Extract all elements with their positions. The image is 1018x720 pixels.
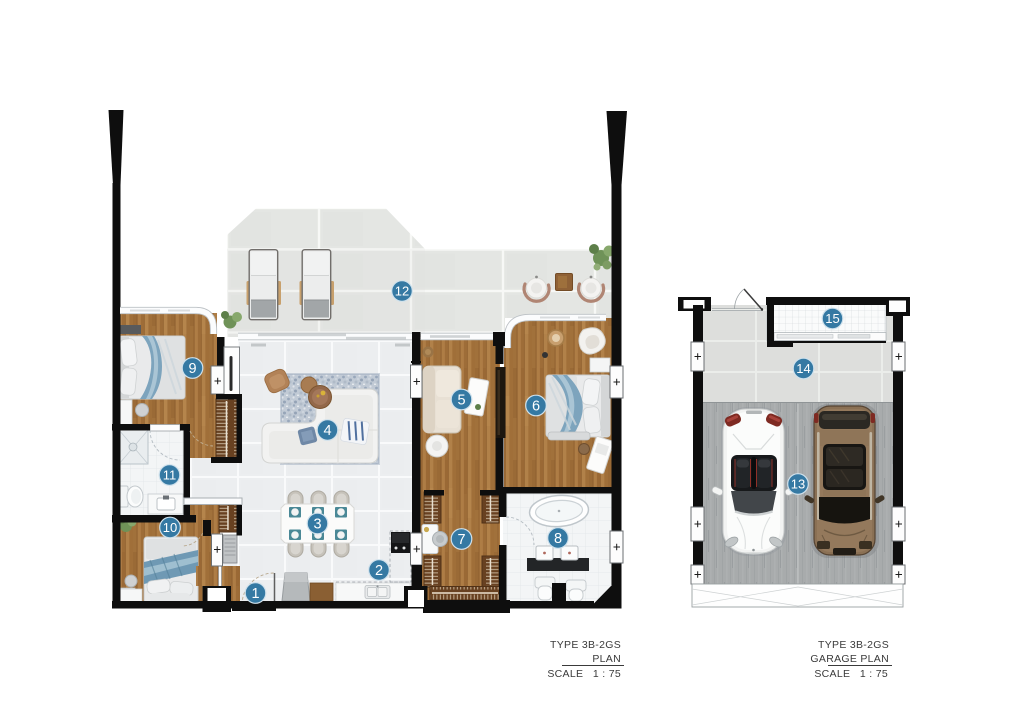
svg-text:SCALE 1 : 75: SCALE 1 : 75	[547, 668, 621, 680]
svg-text:13: 13	[791, 477, 805, 492]
svg-text:8: 8	[554, 531, 562, 547]
svg-text:9: 9	[188, 361, 196, 377]
svg-text:TYPE 3B-2GS: TYPE 3B-2GS	[818, 639, 889, 651]
svg-text:10: 10	[163, 520, 177, 535]
svg-text:3: 3	[313, 517, 321, 533]
svg-text:12: 12	[395, 284, 409, 299]
svg-text:14: 14	[796, 361, 810, 376]
svg-text:1: 1	[251, 586, 259, 602]
svg-text:4: 4	[323, 423, 331, 439]
svg-text:11: 11	[163, 468, 177, 483]
svg-text:5: 5	[457, 393, 465, 409]
svg-text:PLAN: PLAN	[592, 653, 621, 665]
svg-text:15: 15	[825, 311, 839, 326]
svg-text:7: 7	[457, 532, 465, 548]
svg-text:TYPE 3B-2GS: TYPE 3B-2GS	[550, 639, 621, 651]
svg-text:GARAGE PLAN: GARAGE PLAN	[810, 653, 889, 665]
svg-text:2: 2	[375, 563, 383, 579]
svg-text:SCALE 1 : 75: SCALE 1 : 75	[814, 668, 888, 680]
svg-text:6: 6	[532, 399, 540, 415]
